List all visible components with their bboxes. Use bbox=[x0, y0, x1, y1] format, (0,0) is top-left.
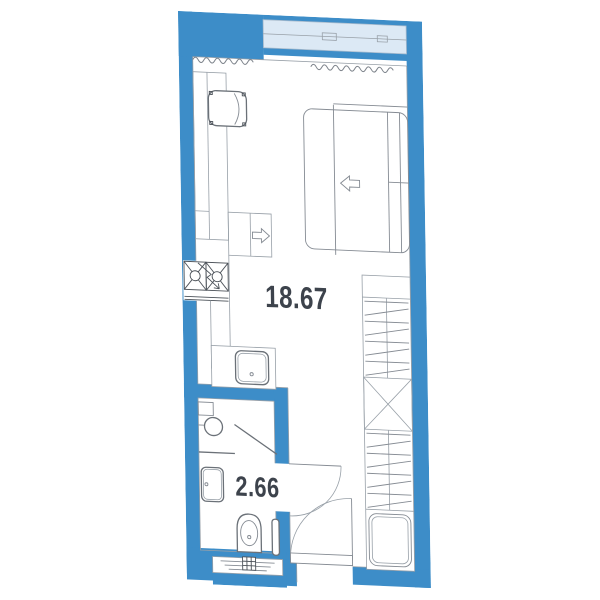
towel-rail bbox=[272, 519, 280, 555]
apartment-plan: 18.67 2.66 bbox=[178, 11, 431, 594]
plan-drawing: 18.67 2.66 bbox=[178, 11, 431, 594]
kitchen-sink bbox=[211, 345, 276, 389]
bed bbox=[303, 102, 409, 258]
cabinet bbox=[369, 513, 412, 567]
nightstand bbox=[228, 212, 272, 257]
armchair bbox=[208, 90, 247, 127]
radiator-wave-icon bbox=[311, 64, 394, 73]
washbasin bbox=[201, 467, 224, 502]
shower-screen bbox=[234, 424, 276, 454]
window bbox=[263, 20, 406, 54]
bathroom-door-swing bbox=[289, 464, 342, 518]
pull-out-arrow-right-icon bbox=[252, 228, 269, 243]
floor-plan-canvas: 18.67 2.66 bbox=[0, 0, 600, 600]
bathroom-area-label: 2.66 bbox=[235, 471, 280, 504]
cooktop bbox=[183, 260, 230, 302]
toilet bbox=[237, 514, 262, 553]
shower bbox=[198, 402, 277, 455]
shower-head-icon bbox=[204, 417, 222, 436]
wardrobe bbox=[362, 275, 415, 571]
main-room-area-label: 18.67 bbox=[265, 279, 328, 316]
